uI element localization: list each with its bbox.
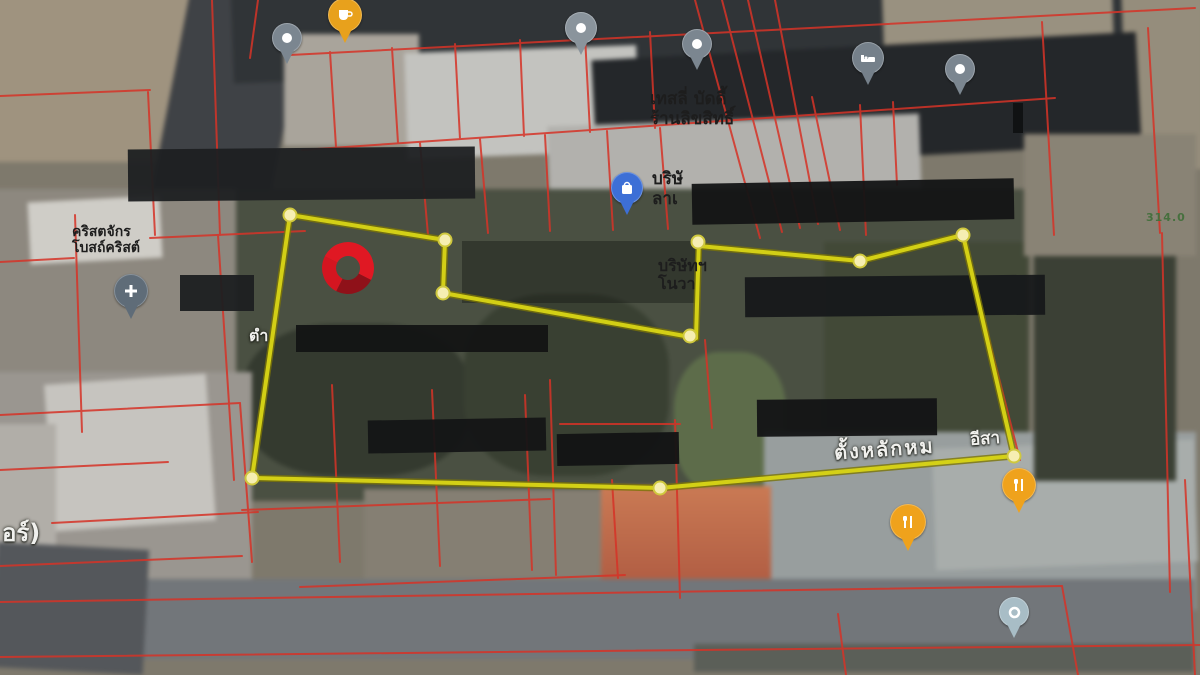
redaction-bar	[757, 398, 937, 437]
pin-tail	[574, 41, 588, 55]
company-top-label: บริษั ลาเ	[652, 170, 683, 209]
redaction-bar	[745, 275, 1045, 318]
redaction-bar	[368, 417, 547, 453]
pin-tail	[620, 201, 634, 215]
bag-icon	[611, 172, 643, 204]
teal-pin[interactable]	[999, 597, 1029, 639]
parcel-number-label: 314.0	[1146, 212, 1186, 225]
redaction-bar	[128, 146, 475, 201]
pin-tail	[280, 50, 294, 64]
ring-icon	[999, 597, 1029, 627]
dot-icon	[565, 12, 597, 44]
gray-pin-3[interactable]	[682, 29, 712, 71]
church-label: คริสตจักร โบสถ์คริสต์	[72, 224, 140, 256]
cross-icon	[114, 274, 148, 308]
gray-pin-4[interactable]	[945, 54, 975, 96]
restaurant-pin-2[interactable]	[1002, 468, 1036, 514]
redaction-bar	[1013, 103, 1023, 133]
pin-tail	[338, 29, 352, 43]
dot-icon	[272, 23, 302, 53]
coffee-pin[interactable]	[328, 0, 362, 44]
company-mid-label: บริษัทฯ โนวา	[658, 257, 707, 294]
pin-tail	[124, 305, 138, 319]
pin-tail	[1007, 624, 1021, 638]
eesa-label: อีสา	[969, 429, 1000, 451]
shopping-pin[interactable]	[611, 172, 643, 216]
pin-tail	[861, 71, 875, 85]
coffee-icon	[328, 0, 362, 32]
store-label: เทสลี่ บัดดี้ ร้านลิขสิทธิ์	[650, 90, 734, 129]
satellite-imagery	[0, 0, 1200, 675]
pin-tail	[901, 537, 915, 551]
pin-tail	[953, 81, 967, 95]
gray-pin-1[interactable]	[272, 23, 302, 65]
church-pin[interactable]	[114, 274, 148, 320]
map-canvas[interactable]: เทสลี่ บัดดี้ ร้านลิขสิทธิ์ บริษั ลาเ บร…	[0, 0, 1200, 675]
gray-pin-2[interactable]	[565, 12, 597, 56]
bed-icon	[852, 42, 884, 74]
restaurant-pin-1[interactable]	[890, 504, 926, 552]
fork-icon	[1002, 468, 1036, 502]
dot-icon	[945, 54, 975, 84]
redaction-bar	[557, 432, 680, 466]
hotel-pin[interactable]	[852, 42, 884, 86]
tam-label: ตำ	[249, 327, 268, 345]
dot-icon	[682, 29, 712, 59]
pin-tail	[1012, 499, 1026, 513]
street-fragment-label: อร์)	[2, 520, 40, 548]
redaction-bar	[296, 325, 548, 352]
redaction-bar	[692, 178, 1015, 225]
redaction-bar	[180, 275, 254, 311]
pin-tail	[690, 56, 704, 70]
fork-icon	[890, 504, 926, 540]
